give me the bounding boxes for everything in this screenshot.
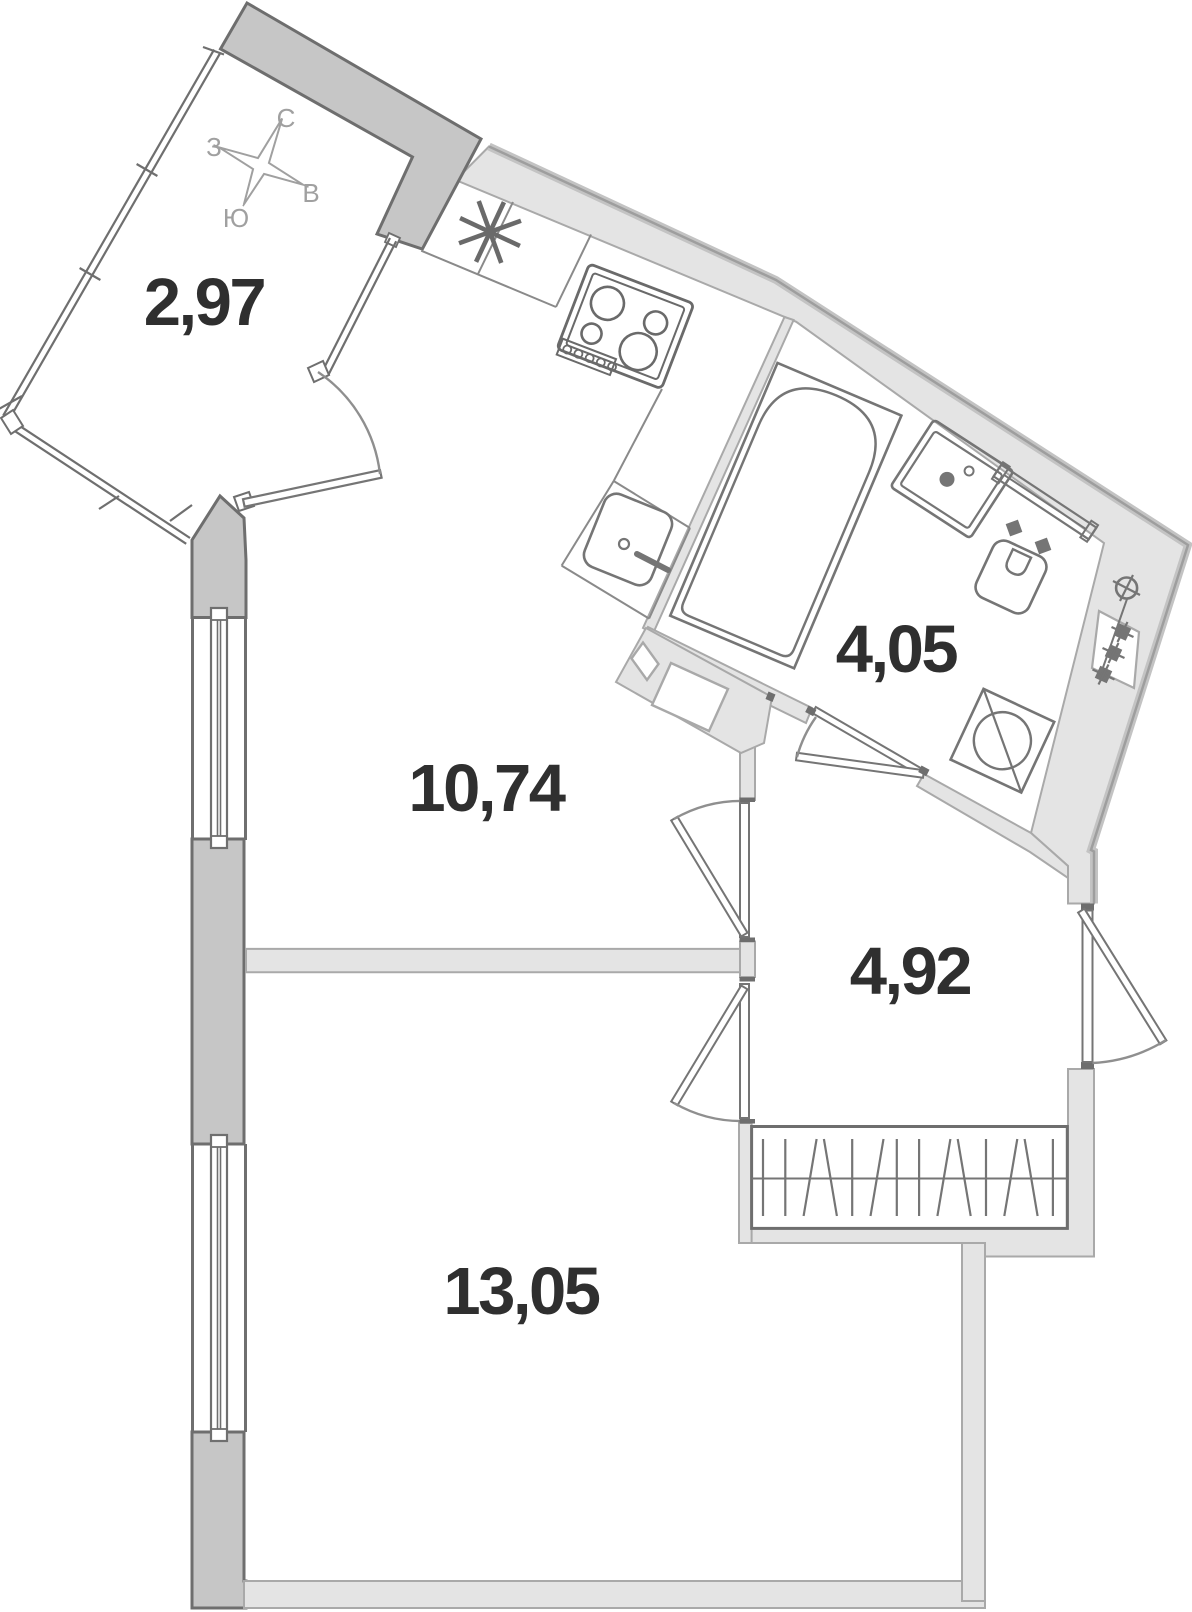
svg-text:С: С [277, 103, 296, 133]
svg-text:13,05: 13,05 [443, 1254, 599, 1329]
svg-text:10,74: 10,74 [408, 751, 565, 826]
svg-text:4,05: 4,05 [836, 612, 958, 687]
svg-text:4,92: 4,92 [850, 934, 971, 1009]
svg-text:Ю: Ю [223, 203, 249, 233]
svg-text:В: В [302, 178, 319, 208]
svg-text:З: З [206, 132, 222, 162]
svg-text:2,97: 2,97 [144, 265, 265, 340]
